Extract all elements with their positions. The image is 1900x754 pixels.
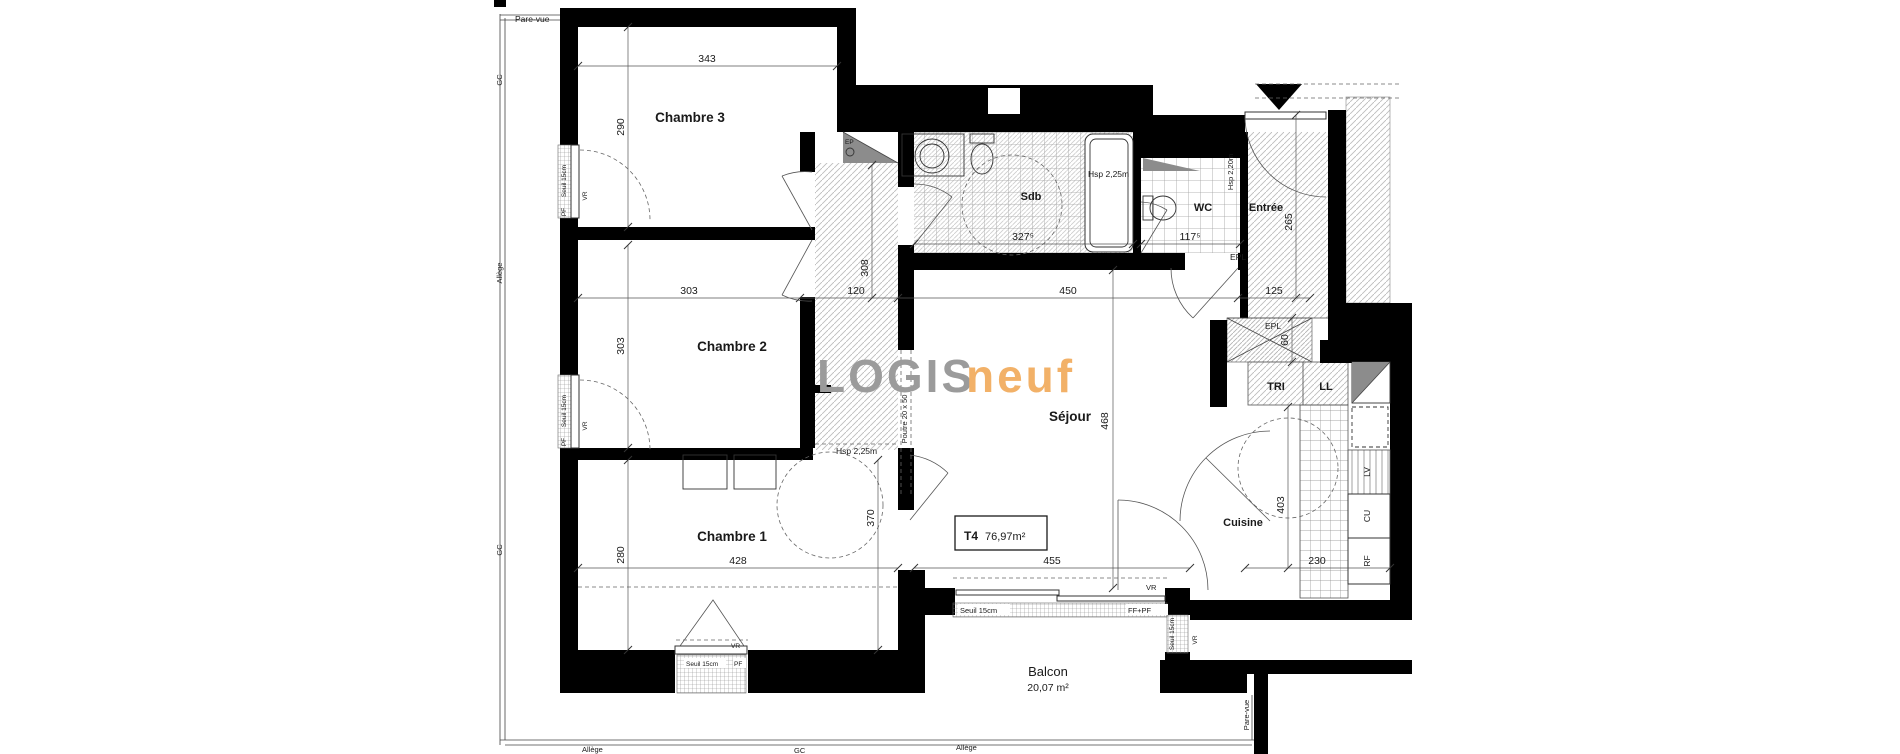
dim-327: 327⁵ bbox=[1012, 231, 1034, 243]
wardrobe-2 bbox=[734, 455, 776, 489]
note-pare-vue-top: Pare-vue bbox=[515, 14, 550, 24]
bathtub-icon bbox=[1085, 134, 1133, 252]
unit-area: 76,97m² bbox=[985, 531, 1026, 543]
note-seuil-ch2: Seuil 15cm bbox=[561, 395, 568, 427]
kitchen-counter bbox=[1300, 405, 1348, 598]
label-cuisine: Cuisine bbox=[1223, 517, 1263, 529]
tri-ll-closet bbox=[1248, 362, 1348, 405]
note-vr-ch3: VR bbox=[582, 191, 589, 200]
dim-120: 120 bbox=[847, 285, 865, 297]
note-gc-2: GC bbox=[495, 544, 504, 556]
dim-230: 230 bbox=[1308, 555, 1326, 567]
bay-rail-2 bbox=[1057, 596, 1165, 601]
entrance-arrow-icon bbox=[1256, 84, 1302, 110]
dim-468: 468 bbox=[1099, 412, 1111, 430]
note-pf-ch3: PF bbox=[561, 208, 568, 216]
unit-type: T4 bbox=[964, 529, 978, 543]
note-allege-b1: Allège bbox=[582, 745, 603, 754]
wardrobe-1 bbox=[683, 455, 727, 489]
dim-343: 343 bbox=[698, 53, 716, 65]
appliance-dashed bbox=[1352, 407, 1388, 447]
dim-450: 450 bbox=[1059, 285, 1077, 297]
note-vr-ch2: VR bbox=[582, 421, 589, 430]
label-sejour: Séjour bbox=[1049, 409, 1092, 424]
label-chambre2: Chambre 2 bbox=[697, 339, 767, 354]
label-cu: CU bbox=[1362, 510, 1372, 522]
note-seuil-ch1: Seuil 15cm bbox=[686, 661, 718, 668]
label-tri: TRI bbox=[1267, 381, 1285, 393]
note-vr-bay: VR bbox=[1146, 583, 1157, 592]
note-vr-ch1: VR bbox=[731, 643, 740, 650]
dim-280: 280 bbox=[615, 546, 627, 564]
window-ch2 bbox=[571, 375, 579, 448]
logo: LOGIS neuf bbox=[817, 350, 1075, 402]
label-rf: RF bbox=[1362, 555, 1372, 566]
note-seuil-ch3: Seuil 15cm bbox=[561, 165, 568, 197]
note-gc-1: GC bbox=[495, 74, 504, 86]
title-box: T4 76,97m² bbox=[955, 516, 1047, 550]
note-seuil-cuisine: Seuil 15cm bbox=[1169, 618, 1176, 650]
entrance-door-leaf bbox=[1245, 112, 1326, 119]
note-hsp220: Hsp 2,20m bbox=[1226, 154, 1235, 190]
dim-265: 265 bbox=[1283, 213, 1295, 231]
dim-303h: 303 bbox=[680, 285, 698, 297]
note-poutre: Poutre 20 x 50 bbox=[900, 395, 909, 444]
note-allege-b2: Allège bbox=[956, 743, 977, 752]
note-epl-1: EPL bbox=[1230, 252, 1246, 262]
note-vr-cuisine: VR bbox=[1192, 635, 1199, 644]
dim-308: 308 bbox=[859, 259, 871, 277]
note-pf-ch1: PF bbox=[734, 661, 742, 668]
label-ll: LL bbox=[1319, 381, 1333, 393]
dim-60: 60 bbox=[1279, 334, 1291, 346]
note-hsp225-hall: Hsp 2,25m bbox=[836, 446, 877, 456]
note-allege-left: Allège bbox=[495, 263, 504, 284]
note-pare-vue-right: Pare-vue bbox=[1242, 700, 1251, 730]
label-entree: Entrée bbox=[1249, 202, 1283, 214]
dim-290: 290 bbox=[615, 118, 627, 136]
note-gc-b: GC bbox=[794, 746, 806, 754]
dim-125: 125 bbox=[1265, 285, 1283, 297]
note-pf-ch2: PF bbox=[561, 438, 568, 446]
label-chambre1: Chambre 1 bbox=[697, 529, 767, 544]
bay-rail-1 bbox=[956, 590, 1059, 595]
label-lv: LV bbox=[1362, 467, 1372, 477]
note-epl-2: EPL bbox=[1265, 321, 1281, 331]
note-seuil-bay: Seuil 15cm bbox=[960, 606, 997, 615]
hallway-floor bbox=[815, 163, 898, 450]
exterior-slab bbox=[1254, 674, 1268, 754]
label-balcon: Balcon bbox=[1028, 664, 1068, 679]
label-sdb: Sdb bbox=[1021, 191, 1042, 203]
exterior-hatch-strip bbox=[1346, 97, 1390, 303]
exterior-slab bbox=[1160, 660, 1247, 693]
dim-455: 455 bbox=[1043, 555, 1061, 567]
label-chambre3: Chambre 3 bbox=[655, 110, 725, 125]
turning-circle-ch1 bbox=[777, 452, 883, 558]
dim-428: 428 bbox=[729, 555, 747, 567]
window-ch3 bbox=[571, 145, 579, 218]
label-wc: WC bbox=[1194, 202, 1212, 214]
floor-plan: LOGIS neuf T4 76,97m² Chambre 3 Chambre … bbox=[0, 0, 1900, 754]
logo-gray-text: LOGIS bbox=[817, 350, 975, 402]
note-hsp225-sdb: Hsp 2,25m bbox=[1088, 169, 1129, 179]
logo-orange-text: neuf bbox=[966, 350, 1075, 402]
label-balcon-area: 20,07 m² bbox=[1027, 682, 1069, 694]
corner-nub bbox=[494, 0, 506, 7]
note-ep: EP bbox=[845, 139, 854, 146]
dim-370: 370 bbox=[865, 509, 877, 527]
note-ffpf-bay: FF+PF bbox=[1128, 606, 1152, 615]
dim-403: 403 bbox=[1275, 496, 1287, 514]
dim-117: 117⁵ bbox=[1179, 231, 1200, 243]
exterior-slab bbox=[1247, 660, 1412, 674]
dim-303v: 303 bbox=[615, 337, 627, 355]
